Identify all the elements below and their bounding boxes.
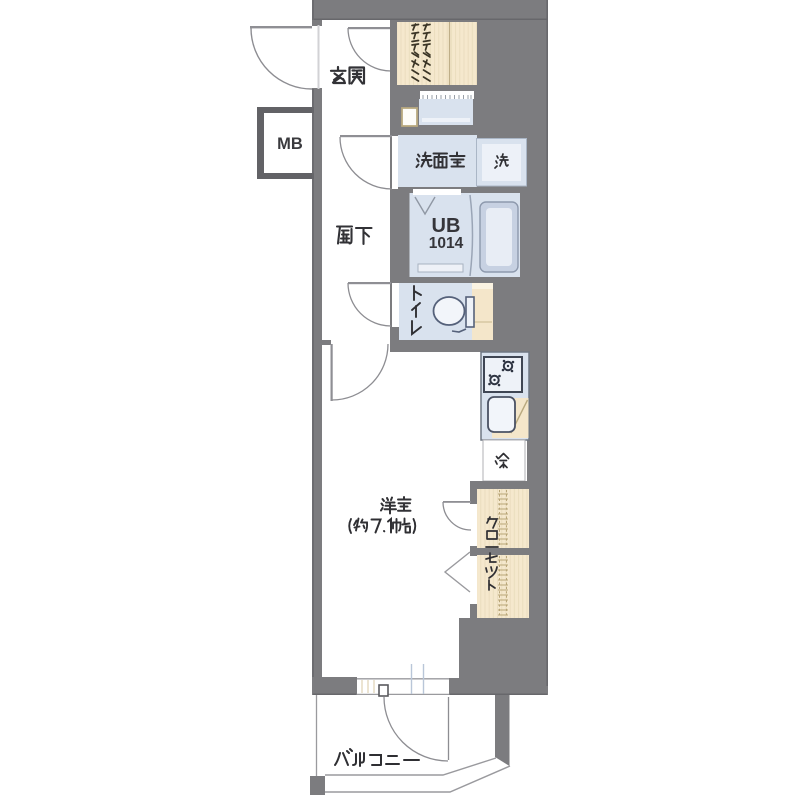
svg-text:UB: UB [432, 215, 461, 237]
svg-text:MB: MB [277, 135, 303, 153]
svg-text:1014: 1014 [429, 235, 464, 252]
